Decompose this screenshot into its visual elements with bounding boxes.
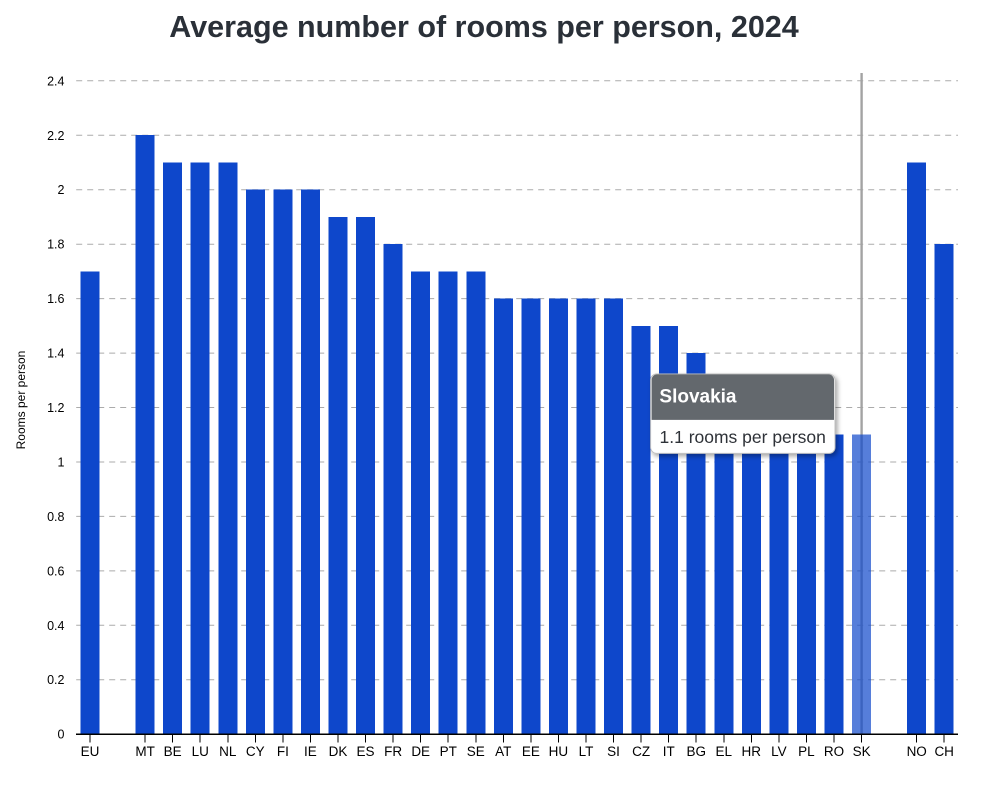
svg-text:1.1 rooms per person: 1.1 rooms per person	[660, 427, 826, 447]
svg-text:EU: EU	[81, 744, 100, 759]
svg-text:DE: DE	[411, 744, 430, 759]
svg-text:HU: HU	[549, 744, 569, 759]
svg-text:MT: MT	[135, 744, 155, 759]
svg-text:0.4: 0.4	[47, 619, 64, 633]
svg-text:CZ: CZ	[632, 744, 650, 759]
svg-text:Slovakia: Slovakia	[659, 387, 737, 408]
svg-text:IT: IT	[663, 744, 675, 759]
svg-text:BE: BE	[164, 744, 182, 759]
svg-text:1.8: 1.8	[47, 238, 64, 252]
svg-text:LT: LT	[579, 744, 594, 759]
svg-text:Average number of rooms per pe: Average number of rooms per person, 2024	[169, 10, 798, 44]
svg-text:2: 2	[58, 183, 65, 197]
svg-text:0.2: 0.2	[47, 673, 64, 687]
svg-text:0: 0	[58, 728, 65, 742]
svg-text:1.6: 1.6	[47, 292, 64, 306]
svg-text:NL: NL	[219, 744, 237, 759]
svg-text:FR: FR	[384, 744, 402, 759]
svg-text:NO: NO	[907, 744, 927, 759]
svg-text:1.4: 1.4	[47, 347, 64, 361]
svg-text:SE: SE	[467, 744, 485, 759]
svg-text:1.2: 1.2	[47, 401, 64, 415]
svg-text:FI: FI	[277, 744, 289, 759]
svg-text:1: 1	[58, 456, 65, 470]
svg-text:SK: SK	[853, 744, 871, 759]
svg-text:ES: ES	[356, 744, 374, 759]
svg-text:RO: RO	[824, 744, 844, 759]
svg-text:LV: LV	[771, 744, 787, 759]
svg-text:2.4: 2.4	[47, 74, 64, 88]
svg-text:IE: IE	[304, 744, 317, 759]
svg-text:HR: HR	[742, 744, 762, 759]
svg-text:EE: EE	[522, 744, 540, 759]
svg-text:PL: PL	[798, 744, 815, 759]
svg-text:CY: CY	[246, 744, 265, 759]
svg-text:EL: EL	[716, 744, 733, 759]
svg-text:CH: CH	[934, 744, 954, 759]
svg-text:SI: SI	[607, 744, 620, 759]
svg-text:DK: DK	[329, 744, 348, 759]
svg-text:LU: LU	[192, 744, 209, 759]
svg-text:BG: BG	[686, 744, 706, 759]
svg-text:0.6: 0.6	[47, 564, 64, 578]
svg-text:2.2: 2.2	[47, 129, 64, 143]
svg-text:PT: PT	[440, 744, 457, 759]
svg-text:Rooms per person: Rooms per person	[14, 351, 28, 450]
svg-text:0.8: 0.8	[47, 510, 64, 524]
svg-text:AT: AT	[495, 744, 511, 759]
